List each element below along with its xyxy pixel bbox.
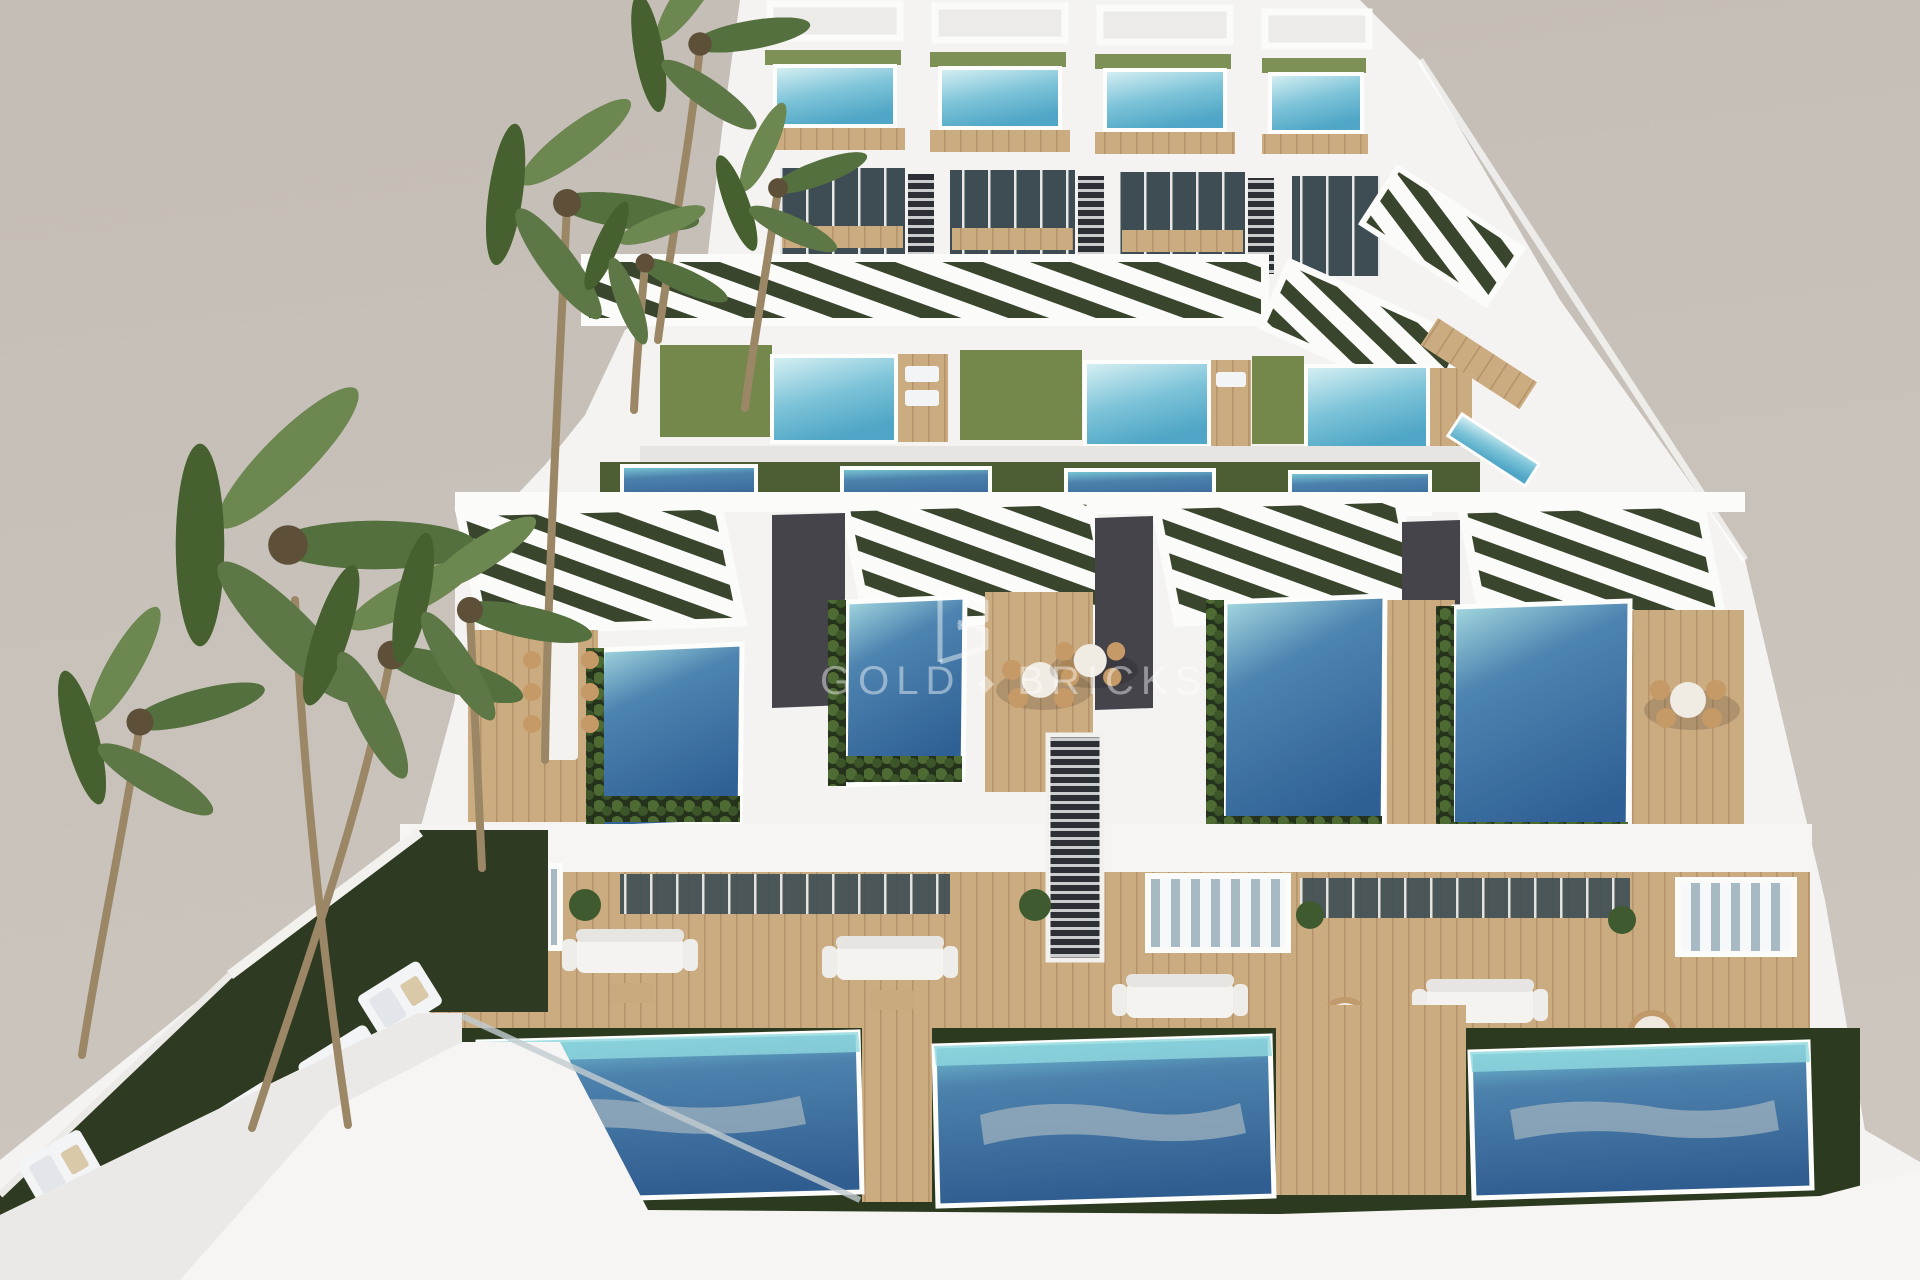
- rooftop-pool: [775, 66, 895, 126]
- rooftop-pool: [1270, 74, 1362, 132]
- rooftop-pool: [1105, 70, 1225, 130]
- louver-balcony: [1678, 880, 1794, 954]
- louver-balcony: [1148, 876, 1288, 950]
- middle-rooftop-pools: [772, 356, 1428, 450]
- rooftop-pool: [772, 356, 896, 442]
- ground-level: [420, 1005, 1860, 1218]
- rooftop-pool: [1306, 366, 1428, 450]
- architectural-render: GOLD◆BRICKS: [0, 0, 1920, 1280]
- rooftop-pool: [1452, 601, 1630, 851]
- dining-set: [1644, 680, 1740, 730]
- rooftop-pool: [1223, 596, 1385, 846]
- render-image: GOLD◆BRICKS: [0, 0, 1920, 1280]
- central-staircase: [1048, 735, 1102, 960]
- parapet-shadow: [640, 446, 1480, 462]
- rooftop-pool: [940, 68, 1060, 128]
- rooftop-pool: [1085, 362, 1209, 446]
- balcony-fascia: [400, 824, 1812, 872]
